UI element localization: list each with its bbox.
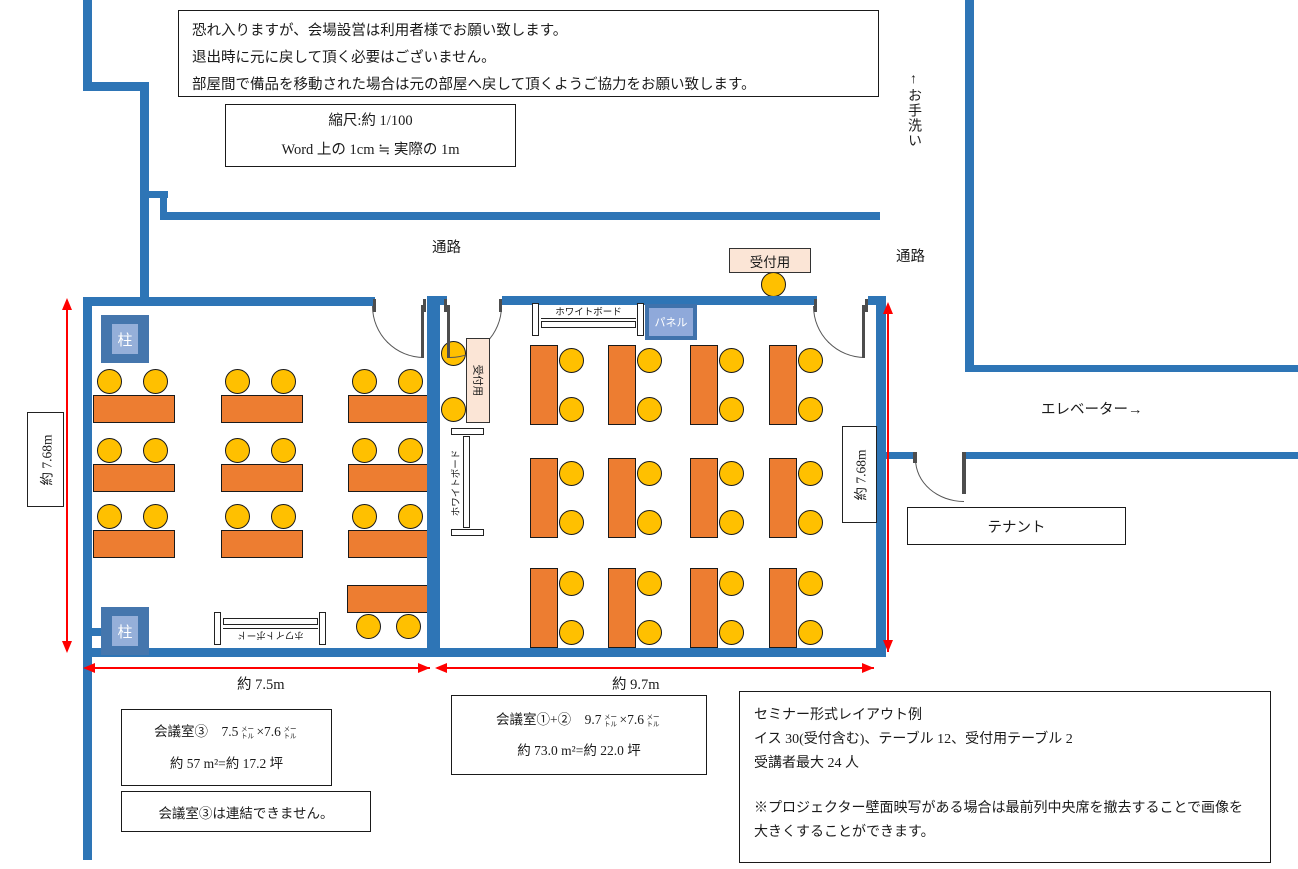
chair [719, 571, 744, 596]
usage-note-line3: 部屋間で備品を移動された場合は元の部屋へ戻して頂くようご協力をお願い致します。 [192, 72, 865, 99]
wall-segment [876, 296, 886, 657]
usage-note-line2: 退出時に元に戻して頂く必要はございません。 [192, 45, 865, 72]
room3-spec-area: 約 57 m²=約 17.2 坪 [170, 748, 283, 779]
scale-box: 縮尺:約 1/100 Word 上の 1cm ≒ 実際の 1m [225, 104, 516, 167]
chair [798, 461, 823, 486]
chair [559, 397, 584, 422]
tenant-label: テナント [988, 516, 1046, 537]
chair [352, 369, 377, 394]
scale-line1: 縮尺:約 1/100 [328, 107, 412, 136]
chair [719, 461, 744, 486]
table [348, 464, 430, 492]
chair [225, 504, 250, 529]
whiteboard-bottom-label: ホワイトボード [223, 628, 318, 643]
whiteboard-top-label: ホワイトボード [541, 304, 636, 319]
seminar-line3: 受講者最大 24 人 [754, 752, 1256, 776]
table [769, 458, 797, 538]
seminar-line1: セミナー形式レイアウト例 [754, 704, 1256, 728]
reception-desk: 受付用 [466, 338, 490, 423]
wall-segment [83, 297, 375, 306]
wall-segment [427, 297, 440, 657]
chair [97, 369, 122, 394]
table [608, 458, 636, 538]
chair [559, 348, 584, 373]
table [530, 458, 558, 538]
tenant-door-swing-arc [915, 459, 964, 502]
chair [398, 504, 423, 529]
room12-spec-box: 会議室①+② 9.7メートル×7.6メートル 約 73.0 m²=約 22.0 … [451, 695, 707, 775]
room3-height-text: 約 7.68m [36, 434, 56, 485]
scale-line2: Word 上の 1cm ≒ 実際の 1m [281, 136, 459, 165]
table [348, 395, 430, 423]
arrowhead-left [83, 663, 95, 673]
reception-table-top-label: 受付用 [750, 251, 791, 271]
chair [719, 348, 744, 373]
chair [798, 397, 823, 422]
room12-left-door-leaf [447, 305, 450, 358]
arrowhead-left [435, 663, 447, 673]
chair [398, 438, 423, 463]
chair [798, 571, 823, 596]
chair [225, 438, 250, 463]
whiteboard-bottom-board [223, 618, 318, 625]
reception-desk-label: 受付用 [471, 365, 486, 397]
chair [798, 620, 823, 645]
chair [719, 397, 744, 422]
table [221, 464, 303, 492]
passage-label-right: 通路 [896, 245, 925, 266]
panel: パネル [645, 304, 697, 340]
table [530, 568, 558, 648]
room3-width-label: 約 7.5m [237, 673, 285, 694]
room3-top-door-leaf [421, 305, 424, 358]
chair [719, 510, 744, 535]
dimension-line-room12-width [437, 667, 874, 669]
usage-note-line1: 恐れ入りますが、会場設営は利用者様でお願い致します。 [192, 18, 865, 45]
room12-height-label: 約 7.68m [842, 426, 877, 523]
wall-segment [965, 0, 974, 372]
room12-spec-area: 約 73.0 m²=約 22.0 坪 [517, 735, 640, 766]
chair [143, 438, 168, 463]
chair [225, 369, 250, 394]
dimension-line-room3-width [85, 667, 430, 669]
elevator-label: エレベーター→ [1041, 398, 1143, 419]
chair [356, 614, 381, 639]
wall-segment [83, 0, 92, 90]
reception-table-top: 受付用 [729, 248, 811, 273]
table [93, 530, 175, 558]
table [93, 464, 175, 492]
chair [637, 397, 662, 422]
chair [637, 620, 662, 645]
wall-segment [160, 212, 880, 220]
seminar-box: セミナー形式レイアウト例 イス 30(受付含む)、テーブル 12、受付用テーブル… [739, 691, 1271, 863]
room3-spec-box: 会議室③ 7.5メートル×7.6メートル 約 57 m²=約 17.2 坪 [121, 709, 332, 786]
pillar-top-label: 柱 [112, 324, 138, 354]
chair [559, 620, 584, 645]
room12-spec-size: 会議室①+② 9.7メートル×7.6メートル [496, 704, 662, 735]
room12-right-door-leaf [862, 305, 865, 358]
wall-segment [427, 648, 886, 657]
arrowhead-up [883, 302, 893, 314]
room12-left-door-jamb [499, 299, 502, 312]
chair [637, 510, 662, 535]
chair [398, 369, 423, 394]
table [690, 345, 718, 425]
whiteboard-left-board [463, 436, 470, 528]
table [769, 345, 797, 425]
chair [798, 510, 823, 535]
room12-right-door-jamb [814, 299, 817, 312]
dimension-line-room3-height [66, 303, 68, 651]
table [348, 530, 430, 558]
arrowhead-right [418, 663, 430, 673]
whiteboard-top-cap-left [532, 303, 539, 336]
chair [637, 571, 662, 596]
room12-height-text: 約 7.68m [850, 449, 870, 500]
floor-plan: 恐れ入りますが、会場設営は利用者様でお願い致します。 退出時に元に戻して頂く必要… [0, 0, 1298, 869]
wall-segment [965, 365, 1298, 372]
chair [637, 461, 662, 486]
room3-height-label: 約 7.68m [27, 412, 64, 507]
seminar-line2: イス 30(受付含む)、テーブル 12、受付用テーブル 2 [754, 728, 1256, 752]
chair [352, 504, 377, 529]
room12-right-door-swing-arc [813, 306, 865, 358]
room3-top-door-swing-arc [372, 306, 424, 358]
pillar-bottom-label: 柱 [112, 616, 138, 646]
chair [761, 272, 786, 297]
room3-top-door-jamb [373, 299, 376, 312]
table [690, 458, 718, 538]
chair [396, 614, 421, 639]
room3-spec-size: 会議室③ 7.5メートル×7.6メートル [154, 716, 299, 747]
table [608, 345, 636, 425]
whiteboard-bottom-cap-right [319, 612, 326, 645]
wall-segment [966, 452, 1298, 459]
whiteboard-bottom-cap-left [214, 612, 221, 645]
dimension-line-room12-height [887, 306, 889, 652]
tenant-box: テナント [907, 507, 1126, 545]
whiteboard-left-label: ホワイトボード [448, 433, 462, 533]
table [347, 585, 429, 613]
chair [559, 571, 584, 596]
chair [143, 504, 168, 529]
room12-right-door-jamb [865, 299, 868, 312]
table [221, 530, 303, 558]
chair [97, 438, 122, 463]
tenant-door-leaf [962, 458, 966, 494]
table [769, 568, 797, 648]
table [93, 395, 175, 423]
chair [97, 504, 122, 529]
panel-label: パネル [649, 308, 693, 336]
arrowhead-down [62, 641, 72, 653]
seminar-note: ※プロジェクター壁面映写がある場合は最前列中央席を撤去することで画像を大きくする… [754, 797, 1256, 845]
chair [352, 438, 377, 463]
room12-width-label: 約 9.7m [612, 673, 660, 694]
table [690, 568, 718, 648]
chair [637, 348, 662, 373]
table [530, 345, 558, 425]
pillar-top: 柱 [101, 315, 149, 363]
tenant-door-jamb [913, 452, 917, 463]
chair [719, 620, 744, 645]
toilet-label: ↑お手洗い [903, 72, 923, 232]
whiteboard-top-cap-right [637, 303, 644, 336]
passage-label-left: 通路 [432, 236, 461, 257]
chair [441, 397, 466, 422]
arrowhead-up [62, 298, 72, 310]
arrowhead-down [883, 640, 893, 652]
arrowhead-right [862, 663, 874, 673]
pillar-bottom: 柱 [101, 607, 149, 655]
chair [271, 504, 296, 529]
chair [559, 461, 584, 486]
table [221, 395, 303, 423]
chair [559, 510, 584, 535]
chair [271, 369, 296, 394]
chair [143, 369, 168, 394]
whiteboard-top-board [541, 321, 636, 328]
table [608, 568, 636, 648]
usage-note-box: 恐れ入りますが、会場設営は利用者様でお願い致します。 退出時に元に戻して頂く必要… [178, 10, 879, 97]
room3-note-text: 会議室③は連結できません。 [158, 802, 333, 822]
chair [271, 438, 296, 463]
room3-note-box: 会議室③は連結できません。 [121, 791, 371, 832]
chair [798, 348, 823, 373]
wall-segment [83, 297, 92, 860]
